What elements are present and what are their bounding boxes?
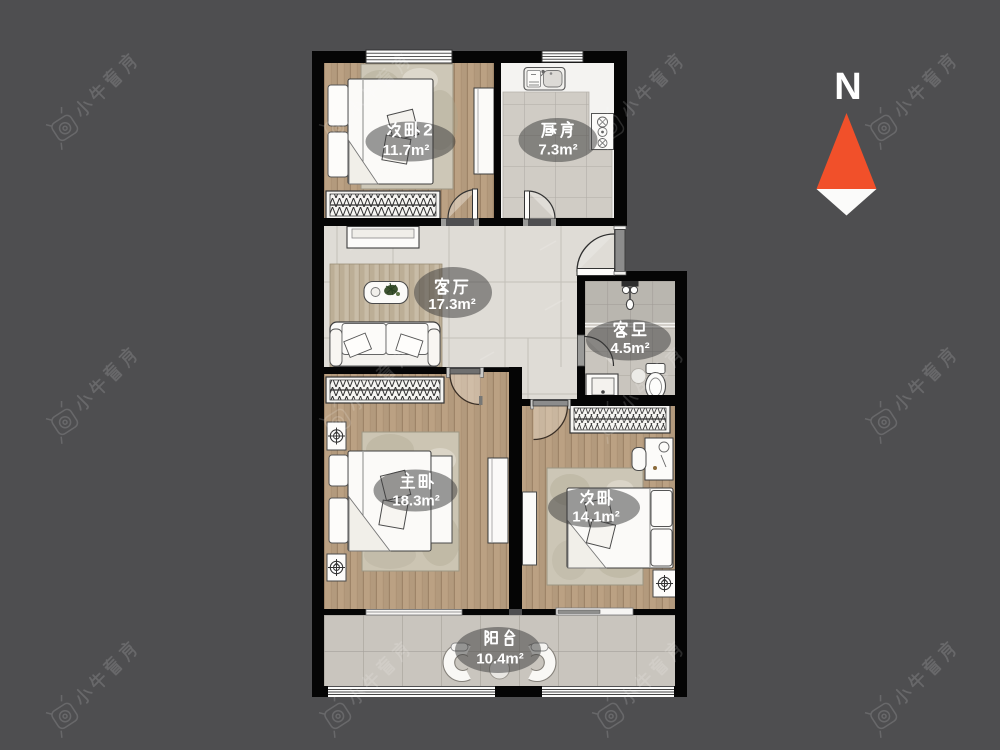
svg-text:14.1m²: 14.1m² [572, 509, 620, 526]
svg-text:2: 2 [423, 121, 432, 140]
svg-text:11.7m²: 11.7m² [383, 142, 430, 159]
svg-text:N: N [834, 66, 861, 108]
svg-text:10.4m²: 10.4m² [476, 651, 524, 668]
svg-text:4.5m²: 4.5m² [610, 340, 649, 357]
svg-text:17.3m²: 17.3m² [428, 296, 476, 313]
svg-text:7.3m²: 7.3m² [538, 142, 577, 159]
svg-text:18.3m²: 18.3m² [392, 493, 440, 510]
